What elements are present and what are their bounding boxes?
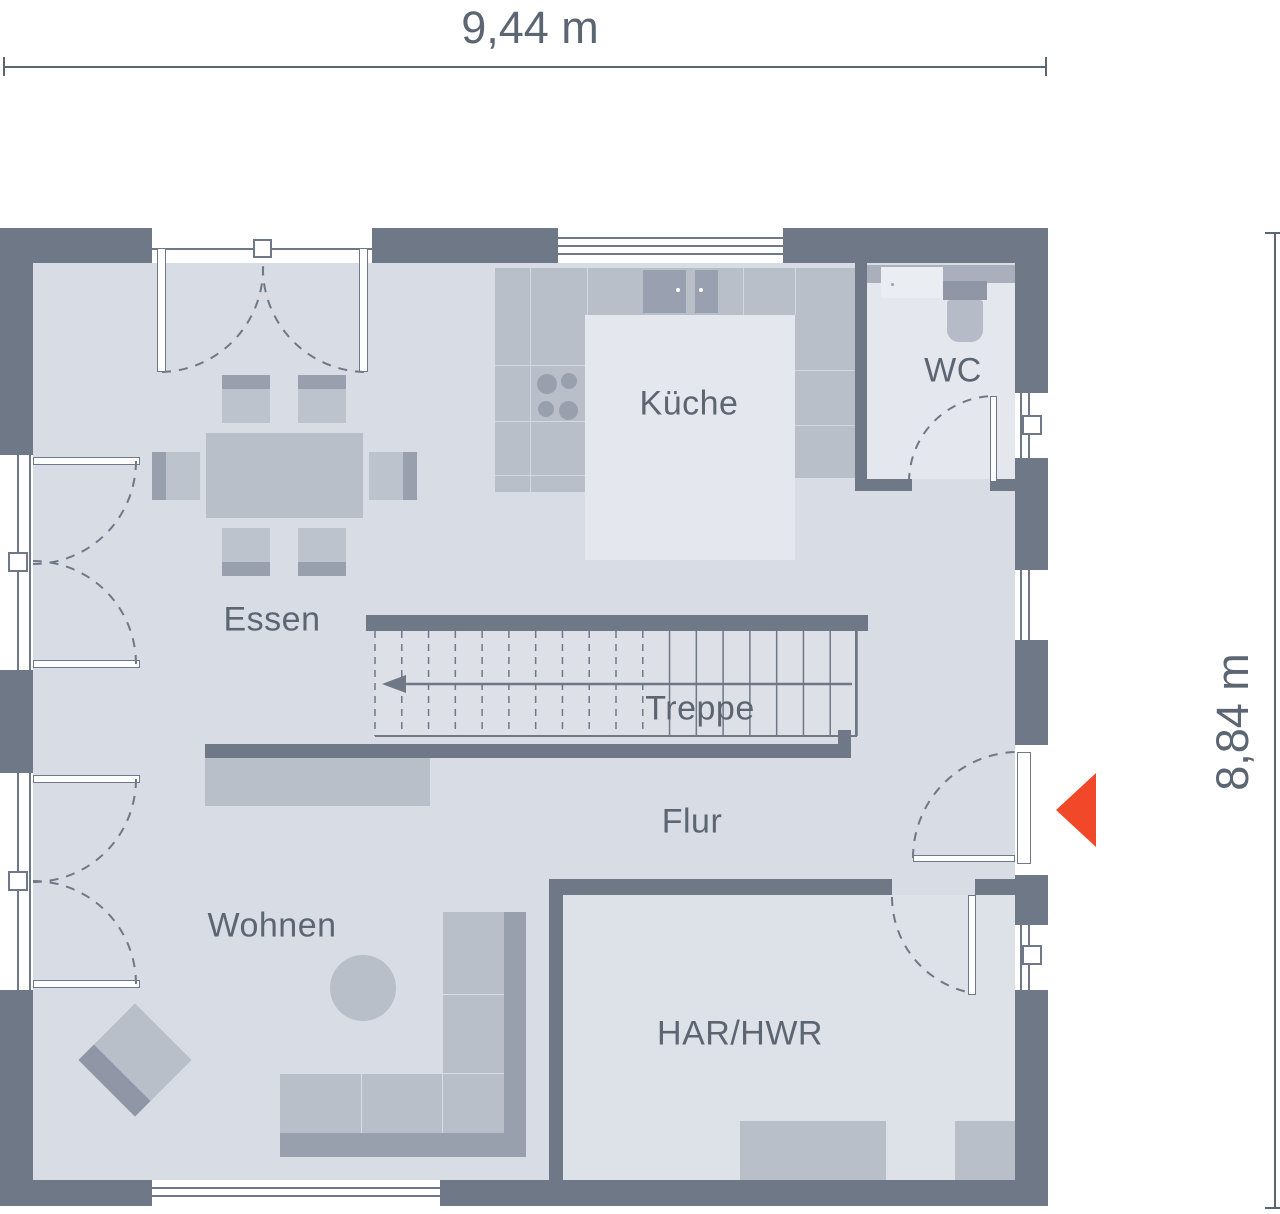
wall-left-mid (0, 670, 33, 773)
wall-left-upper (0, 263, 33, 455)
wc-door-leaf (990, 396, 997, 482)
counter-divider (530, 315, 531, 492)
dining-chair (298, 528, 346, 576)
cooktop-burner (537, 374, 557, 394)
height-dimension-line (1274, 233, 1276, 1208)
dining-chair (222, 528, 270, 576)
utility-wall-top-stub (975, 879, 1015, 895)
counter-divider (495, 365, 585, 366)
sofa-cushion (443, 995, 504, 1073)
window-frame-line (558, 253, 783, 255)
terrace-door-leaf-right (359, 248, 368, 372)
stair-railing-bar (205, 744, 851, 758)
terrace-door-symbol (253, 239, 272, 258)
sofa-backrest (504, 912, 526, 1157)
room-label-hall: Flur (662, 803, 723, 842)
wc-sink (881, 267, 943, 298)
dimension-tick (1045, 57, 1047, 76)
width-dimension-line (4, 66, 1047, 68)
window-frame-line (558, 237, 783, 239)
utility-wall-left (549, 879, 563, 1180)
window-frame-line (1028, 570, 1030, 640)
wall-bottom-right (440, 1180, 1048, 1206)
window-frame-line (558, 245, 783, 247)
window-leaf (33, 775, 140, 783)
window-frame-line (152, 1187, 440, 1189)
oven-icon (643, 270, 686, 313)
counter-divider (530, 268, 531, 315)
window-frame-line (29, 773, 31, 990)
sofa-cushion (443, 1074, 504, 1133)
counter-divider (795, 425, 855, 426)
entrance-door-leaf (913, 855, 1015, 862)
window-frame-line (29, 455, 31, 670)
dimension-tick (1265, 1207, 1280, 1209)
wall-left-lower (0, 990, 33, 1206)
sofa-backrest (280, 1133, 504, 1157)
window-leaf (33, 660, 140, 668)
wall-top-right (783, 228, 1048, 263)
room-label-stairs: Treppe (645, 690, 754, 729)
dimension-tick (3, 57, 5, 76)
wall-right-4 (1015, 875, 1048, 925)
sofa-cushion (362, 1074, 442, 1133)
counter-divider (743, 268, 744, 315)
room-label-utility: HAR/HWR (657, 1015, 823, 1054)
cooktop-burner (561, 373, 577, 389)
room-label-living: Wohnen (207, 907, 336, 946)
dishwasher-icon (695, 270, 718, 313)
dining-chair (369, 452, 417, 500)
living-window (152, 1180, 440, 1206)
stair-railing-tab (838, 730, 851, 746)
terrace-door-leaf-left (157, 248, 166, 372)
window-sill-symbol (8, 552, 28, 572)
sideboard (205, 758, 430, 806)
window-sill-symbol (1022, 945, 1042, 965)
wall-right-5 (1015, 990, 1048, 1206)
entrance-arrow-icon (1056, 773, 1096, 847)
window-leaf (33, 457, 140, 465)
cooktop-burner (538, 401, 554, 417)
counter-divider (495, 475, 585, 476)
wc-wall-bottom-a (855, 479, 912, 491)
window-sill-symbol (1022, 415, 1042, 435)
wall-bottom-left (0, 1180, 152, 1206)
wall-top-mid (372, 228, 558, 263)
room-label-wc: WC (924, 352, 982, 391)
entrance-door-frame (1017, 752, 1031, 864)
counter-divider (795, 268, 796, 315)
counter-divider (587, 268, 588, 315)
window-frame-line (1020, 570, 1022, 640)
floor-plan: 9,44 m 8,84 m (0, 0, 1280, 1214)
window-leaf (33, 980, 140, 988)
toilet-bowl (947, 300, 983, 342)
dimension-tick (1265, 232, 1280, 234)
dining-table (206, 433, 363, 518)
stair-window (1015, 570, 1048, 640)
kitchen-counter-right (795, 315, 855, 478)
stair-top-beam (366, 615, 868, 631)
sink-drain (891, 283, 894, 286)
wc-wall-left (855, 263, 867, 491)
room-label-kitchen: Küche (640, 385, 739, 424)
appliance-knob (699, 288, 703, 292)
utility-wall-top (549, 879, 892, 895)
width-dimension-label: 9,44 m (430, 2, 630, 54)
height-dimension-label: 8,84 m (1207, 653, 1259, 791)
counter-divider (795, 370, 855, 371)
appliance-knob (676, 288, 680, 292)
dining-chair (222, 375, 270, 423)
washer-unit (740, 1121, 886, 1180)
dining-chair (152, 452, 200, 500)
utility-door-leaf (968, 895, 976, 995)
toilet-tank (943, 281, 987, 300)
cooktop-burner (559, 401, 578, 420)
wall-top-left (0, 228, 152, 263)
window-frame-line (152, 1195, 440, 1197)
wall-right-1 (1015, 263, 1048, 393)
stair-floor (375, 631, 857, 736)
kitchen-window (558, 228, 783, 263)
sofa-cushion (443, 912, 504, 994)
kitchen-floor (585, 315, 795, 560)
dining-chair (298, 375, 346, 423)
wall-right-2 (1015, 458, 1048, 570)
wall-right-3 (1015, 640, 1048, 745)
sofa-cushion (280, 1074, 361, 1133)
coffee-table (330, 955, 396, 1021)
washer-unit (955, 1121, 1015, 1180)
window-sill-symbol (8, 871, 28, 891)
room-label-dining: Essen (224, 601, 321, 640)
counter-divider (495, 421, 585, 422)
